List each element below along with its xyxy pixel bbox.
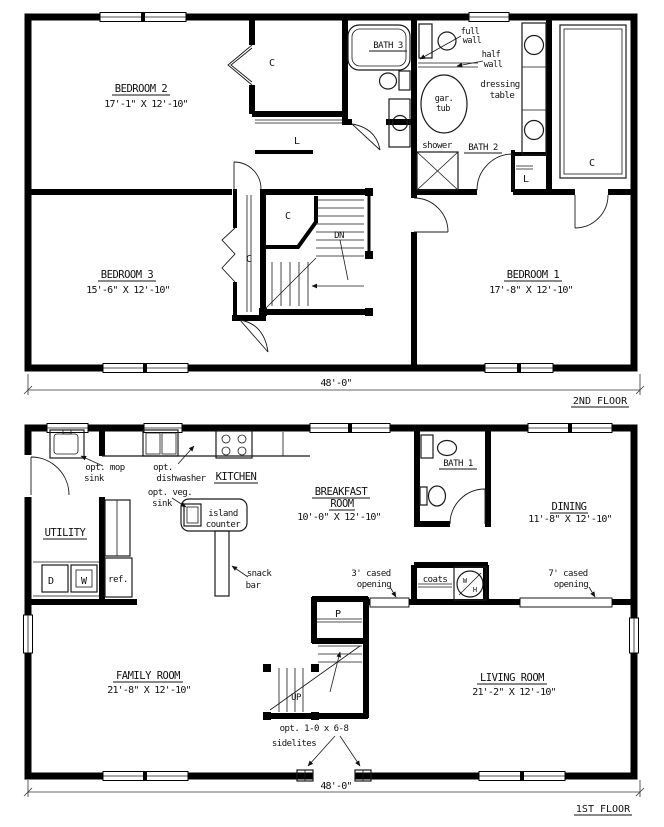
svg-text:table: table [490, 91, 515, 101]
svg-text:dishwasher: dishwasher [156, 474, 206, 484]
half-wall-label: half [482, 50, 501, 60]
mop-sink-label: opt. mop [85, 463, 124, 473]
full-wall-leader [420, 36, 461, 59]
linen-shelves [255, 120, 342, 123]
closet-letter: C [269, 58, 275, 69]
floor-plan-page: BEDROOM 2 17'-1" X 12'-10" BEDROOM 3 15'… [0, 0, 664, 827]
svg-text:sink: sink [152, 499, 173, 509]
dining-dims: 11'-8" X 12'-10" [528, 514, 612, 525]
window [24, 615, 33, 653]
first-floor-title: 1ST FLOOR [576, 804, 631, 815]
first-floor-dimension: 48'-0" 1ST FLOOR [24, 780, 644, 815]
svg-text:bar: bar [246, 581, 262, 591]
second-floor-title: 2ND FLOOR [573, 396, 628, 407]
coats-label: coats [423, 575, 448, 585]
window [144, 424, 182, 433]
utility-fixtures [33, 562, 99, 596]
linen-letter: L [294, 136, 300, 147]
window [485, 364, 553, 373]
closet-letter: C [589, 158, 595, 169]
washer-letter: W [81, 576, 88, 587]
bedroom1-label: BEDROOM 1 [507, 269, 560, 281]
stairs-dn-label: DN [334, 231, 344, 241]
snack-bar-label: snack [247, 569, 273, 579]
second-floor-walls [28, 17, 634, 368]
accordion-door [222, 228, 235, 282]
closet-door [228, 45, 252, 85]
svg-text:sidelites: sidelites [272, 739, 316, 749]
dryer-letter: D [48, 576, 54, 587]
linen-letter: L [523, 174, 529, 185]
veg-sink-label: opt. veg. [148, 488, 192, 498]
cased-opening-3ft-label: 3' cased [351, 569, 390, 579]
half-wall-leader [457, 61, 483, 66]
breakfast-label: BREAKFAST [315, 486, 369, 498]
closet-letter: C [285, 211, 291, 222]
cased-opening-7ft-label: 7' cased [548, 569, 587, 579]
first-floor-plan: opt. mop sink opt. dishwasher KITCHEN op… [24, 424, 645, 816]
svg-text:tub: tub [436, 104, 450, 114]
window [47, 424, 88, 433]
island-counter-label: island [208, 509, 238, 519]
bedroom2-dims: 17'-1" X 12'-10" [104, 99, 188, 110]
bedroom3-label: BEDROOM 3 [101, 269, 154, 281]
bedroom2-label: BEDROOM 2 [115, 83, 168, 95]
svg-text:wall: wall [484, 60, 503, 70]
sidelites-label: opt. 1-0 x 6-8 [280, 724, 349, 734]
second-floor-dimension: 48'-0" 2ND FLOOR [24, 374, 644, 407]
family-room-label: FAMILY ROOM [116, 670, 180, 682]
second-floor-plan: BEDROOM 2 17'-1" X 12'-10" BEDROOM 3 15'… [24, 13, 644, 408]
garden-tub-label: gar. [435, 94, 453, 104]
window [469, 13, 509, 22]
family-room-dims: 21'-8" X 12'-10" [107, 685, 191, 696]
bath1-label: BATH 1 [443, 459, 473, 469]
window [310, 424, 390, 433]
svg-text:counter: counter [206, 520, 242, 530]
bath2-label: BATH 2 [468, 143, 498, 153]
shower-label: shower [422, 141, 453, 151]
living-room-dims: 21'-2" X 12'-10" [472, 687, 556, 698]
svg-text:ROOM: ROOM [330, 498, 353, 510]
closet-letter: C [246, 254, 252, 265]
refrigerator-label: ref. [108, 575, 128, 585]
breakfast-dims: 10'-0" X 12'-10" [297, 512, 381, 523]
second-floor-width: 48'-0" [320, 378, 351, 389]
svg-text:opening: opening [554, 580, 589, 590]
window [103, 364, 188, 373]
utility-door [25, 455, 70, 497]
window [630, 618, 639, 653]
svg-text:wall: wall [463, 36, 482, 46]
bath3-label: BATH 3 [373, 41, 403, 51]
walkin-closet-shelves [560, 25, 626, 178]
cased-opening-7ft [520, 598, 612, 607]
living-room-label: LIVING ROOM [480, 672, 544, 684]
utility-label: UTILITY [45, 527, 87, 539]
dishwasher-label: opt. [153, 463, 173, 473]
window [528, 424, 612, 433]
floor-plan-drawing: BEDROOM 2 17'-1" X 12'-10" BEDROOM 3 15'… [0, 0, 664, 827]
first-floor-width: 48'-0" [320, 781, 351, 792]
window [103, 772, 188, 781]
bedroom3-dims: 15'-6" X 12'-10" [86, 285, 170, 296]
window [100, 13, 186, 22]
pantry-letter: P [335, 609, 341, 620]
kitchen-label: KITCHEN [216, 471, 257, 483]
bedroom1-dims: 17'-8" X 12'-10" [489, 285, 573, 296]
window [479, 772, 565, 781]
svg-text:opening: opening [357, 580, 392, 590]
stairs-up [270, 646, 362, 712]
svg-text:sink: sink [84, 474, 105, 484]
water-heater-h: H [473, 586, 477, 594]
dining-label: DINING [552, 501, 587, 513]
bath1-fixtures [420, 435, 485, 524]
water-heater-w: W [463, 577, 468, 585]
dressing-table-label: dressing [480, 80, 519, 90]
cased-opening-3ft [370, 598, 409, 607]
stairs-up-label: UP [291, 693, 302, 703]
